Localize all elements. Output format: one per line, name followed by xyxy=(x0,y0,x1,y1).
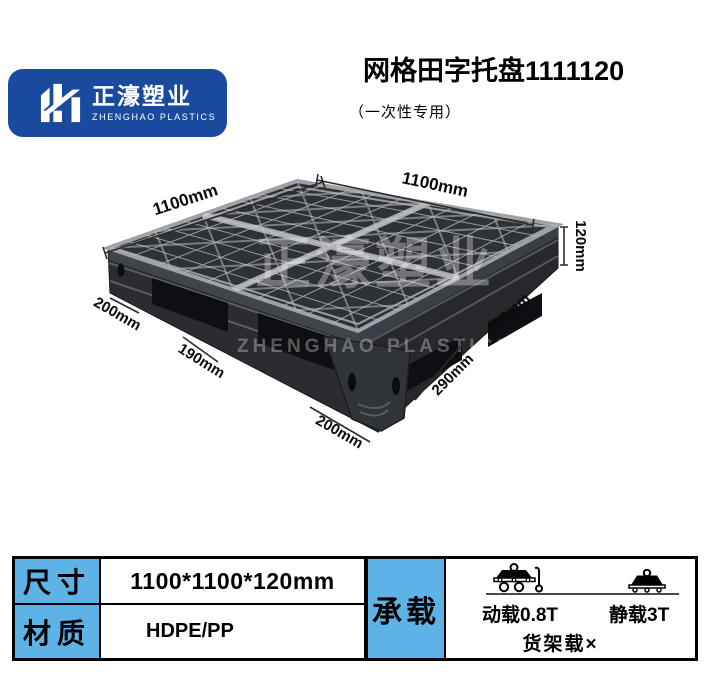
title-block: 网格田字托盘1111120 xyxy=(363,55,624,88)
static-load-label: 静载3T xyxy=(609,600,669,627)
dim-label-height: 120mm xyxy=(572,220,589,272)
dim-line-height xyxy=(560,227,568,265)
brand-name-en: ZHENGHAO PLASTICS xyxy=(92,113,216,122)
static-load-icon xyxy=(625,569,669,593)
page-title: 网格田字托盘1111120 xyxy=(363,55,624,88)
brand-name-cn: 正濠塑业 xyxy=(92,85,216,108)
watermark-en: ZHENGHAO PLASTICS xyxy=(237,336,513,357)
spec-material-value: HDPE/PP xyxy=(101,605,364,658)
pallet-photo: 正濠塑业 ZHENGHAO PLASTICS 1100mm 1100mm 120… xyxy=(0,160,710,480)
spec-load-label: 承载 xyxy=(364,559,446,658)
spec-size-label: 尺寸 xyxy=(15,559,101,605)
rack-load-label: 货架载× xyxy=(446,629,675,656)
spec-load-value: 动载0.8T 静载3T 货架载× xyxy=(446,559,695,658)
brand-mark-icon xyxy=(38,82,84,124)
page-subtitle: （一次性专用） xyxy=(349,101,461,122)
spec-table: 尺寸 1100*1100*120mm 材质 HDPE/PP 承载 xyxy=(12,556,698,661)
spec-size-value: 1100*1100*120mm xyxy=(101,559,364,605)
product-sheet: 正濠塑业 ZHENGHAO PLASTICS 网格田字托盘1111120 （一次… xyxy=(0,0,710,678)
ground-line xyxy=(486,593,679,595)
brand-logo: 正濠塑业 ZHENGHAO PLASTICS xyxy=(8,69,227,137)
dim-label-top-right: 1100mm xyxy=(400,168,470,201)
dynamic-load-icon xyxy=(488,563,550,593)
watermark-cn: 正濠塑业 xyxy=(255,232,495,295)
spec-material-label: 材质 xyxy=(15,605,101,658)
dynamic-load-label: 动载0.8T xyxy=(482,600,558,627)
